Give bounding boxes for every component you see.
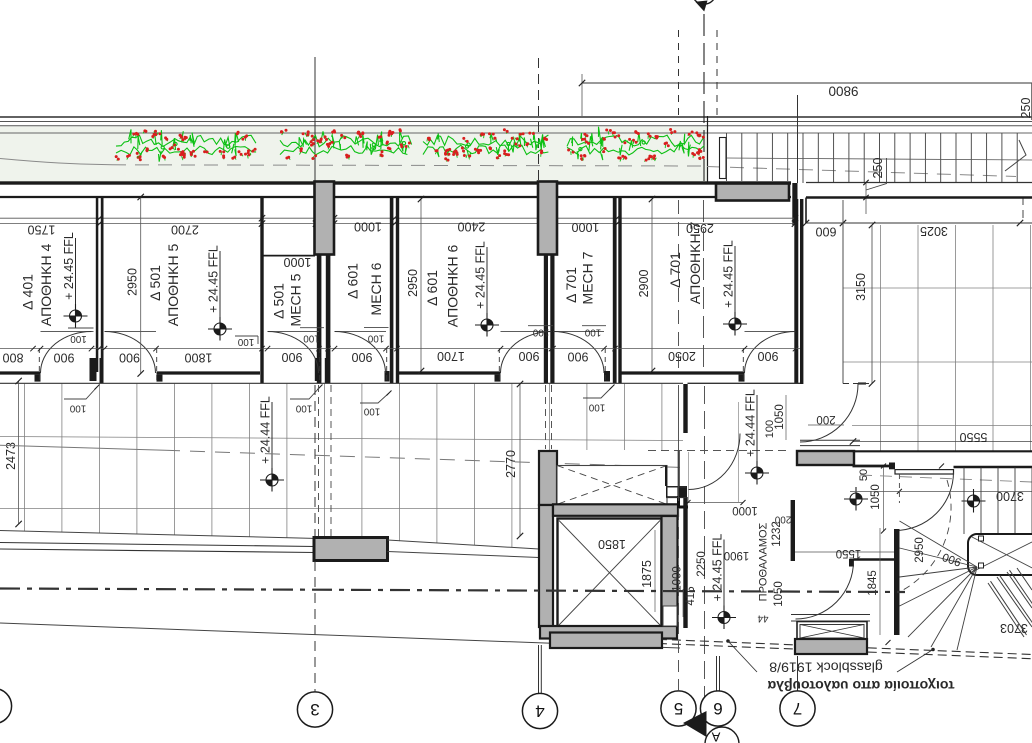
svg-text:Δ 601: Δ 601 [345, 263, 361, 299]
svg-text:1050: 1050 [774, 404, 786, 430]
svg-text:1000: 1000 [672, 566, 684, 592]
svg-text:Δ 401: Δ 401 [20, 274, 36, 310]
svg-text:3025: 3025 [920, 224, 948, 238]
svg-text:5550: 5550 [960, 430, 988, 444]
svg-text:MECH 7: MECH 7 [580, 251, 596, 304]
svg-text:100: 100 [69, 403, 86, 414]
svg-text:2700: 2700 [171, 223, 199, 237]
svg-text:1750: 1750 [28, 223, 56, 237]
svg-text:2400: 2400 [458, 220, 486, 234]
svg-text:900: 900 [119, 351, 140, 365]
svg-text:900: 900 [282, 350, 303, 364]
svg-text:Δ 501: Δ 501 [147, 265, 163, 301]
svg-text:1875: 1875 [640, 560, 654, 588]
svg-text:MECH 5: MECH 5 [288, 273, 304, 326]
svg-text:Δ 701: Δ 701 [563, 267, 579, 303]
svg-text:3703: 3703 [1000, 621, 1028, 635]
svg-text:100: 100 [584, 327, 601, 338]
svg-text:1000: 1000 [284, 255, 312, 269]
svg-text:100: 100 [363, 406, 380, 417]
svg-text:5: 5 [674, 699, 683, 718]
svg-text:1232: 1232 [771, 521, 783, 547]
svg-text:2950: 2950 [126, 268, 140, 296]
svg-text:100: 100 [237, 336, 254, 347]
svg-text:+ 24.45 FFL: + 24.45 FFL [722, 240, 736, 308]
svg-text:100: 100 [532, 327, 549, 338]
svg-text:415: 415 [685, 586, 697, 605]
svg-text:100: 100 [588, 402, 605, 413]
svg-text:44: 44 [757, 613, 768, 624]
svg-text:2950: 2950 [914, 537, 926, 563]
svg-text:+ 24.45 FFL: + 24.45 FFL [62, 232, 76, 300]
svg-text:600: 600 [816, 225, 837, 239]
svg-text:900: 900 [352, 350, 373, 364]
svg-text:A: A [711, 730, 720, 743]
svg-text:ΠΡΟΘΑΛΑΜΟΣ: ΠΡΟΘΑΛΑΜΟΣ [758, 522, 770, 601]
svg-text:800: 800 [3, 351, 24, 365]
svg-text:2770: 2770 [504, 450, 518, 478]
svg-text:MECH 6: MECH 6 [368, 262, 384, 315]
svg-text:ΑΠΟΘΗΚΗ 6: ΑΠΟΘΗΚΗ 6 [445, 245, 461, 328]
svg-text:+ 24.45 FFL: + 24.45 FFL [207, 245, 221, 313]
svg-text:4: 4 [535, 702, 544, 721]
svg-text:1050: 1050 [773, 581, 785, 607]
svg-text:2900: 2900 [637, 270, 651, 298]
svg-text:1900: 1900 [724, 549, 750, 561]
svg-text:Δ 701: Δ 701 [667, 252, 683, 288]
svg-text:1000: 1000 [572, 220, 600, 234]
svg-text:7: 7 [793, 699, 802, 718]
svg-text:1050: 1050 [870, 484, 882, 510]
svg-text:1850: 1850 [598, 537, 626, 551]
svg-text:900: 900 [758, 349, 779, 363]
svg-text:3150: 3150 [854, 273, 868, 301]
svg-text:glassblock 1919/8: glassblock 1919/8 [769, 659, 883, 675]
svg-text:9800: 9800 [828, 84, 858, 99]
svg-text:1000: 1000 [354, 220, 382, 234]
svg-text:900: 900 [519, 349, 540, 363]
svg-text:1800: 1800 [185, 351, 213, 365]
svg-text:200: 200 [816, 413, 835, 425]
svg-text:ΑΠΟΘΗΚΗ 5: ΑΠΟΘΗΚΗ 5 [165, 244, 181, 327]
svg-text:2250: 2250 [696, 551, 708, 577]
svg-text:900: 900 [568, 350, 589, 364]
svg-text:1700: 1700 [437, 349, 465, 363]
svg-text:100: 100 [295, 403, 312, 414]
svg-text:3: 3 [310, 700, 319, 719]
svg-text:250: 250 [871, 158, 885, 179]
svg-text:ΑΠΟΘΗΚΗ 4: ΑΠΟΘΗΚΗ 4 [38, 244, 54, 327]
svg-text:3700: 3700 [996, 489, 1024, 503]
svg-text:1000: 1000 [732, 504, 758, 516]
svg-text:100: 100 [70, 333, 87, 344]
svg-text:100: 100 [367, 333, 384, 344]
svg-text:900: 900 [54, 351, 75, 365]
svg-text:Δ 601: Δ 601 [424, 270, 440, 306]
svg-text:+ 24.45 FFL: + 24.45 FFL [474, 241, 488, 309]
svg-text:100: 100 [303, 333, 320, 344]
svg-text:1550: 1550 [836, 547, 862, 559]
svg-text:2950: 2950 [406, 269, 420, 297]
svg-text:Δ 501: Δ 501 [271, 283, 287, 319]
svg-text:ΑΠΟΘΗΚΗ 7: ΑΠΟΘΗΚΗ 7 [687, 222, 703, 305]
svg-text:2050: 2050 [668, 349, 696, 363]
svg-text:250: 250 [1019, 98, 1032, 119]
svg-text:+ 24.44 FFL: + 24.44 FFL [744, 389, 758, 457]
svg-text:6: 6 [713, 699, 722, 718]
